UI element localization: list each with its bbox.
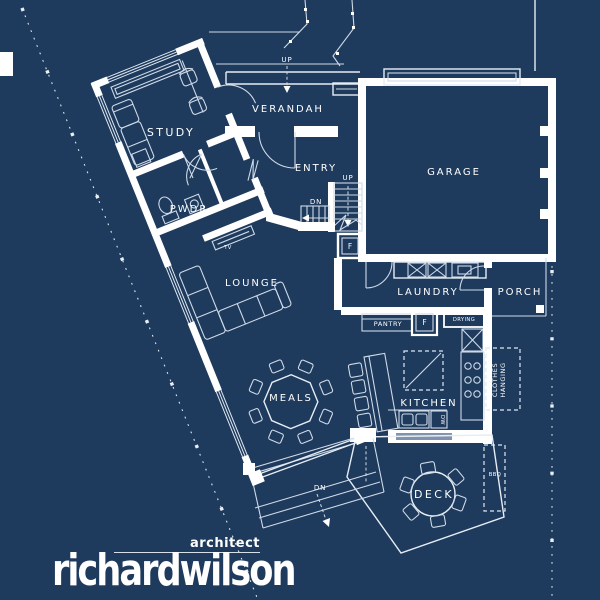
room-label-porch: PORCH bbox=[498, 287, 543, 298]
tv-wall bbox=[203, 211, 272, 239]
label-dishwasher: DW bbox=[439, 415, 445, 425]
label-fireplace-entry: F bbox=[348, 242, 352, 251]
entry-south-wall bbox=[298, 222, 335, 231]
room-label-laundry: LAUNDRY bbox=[397, 287, 459, 298]
breakfast-bench bbox=[347, 353, 398, 434]
study-door-arc bbox=[218, 76, 256, 114]
label-clothes-line2: HANGING bbox=[499, 362, 507, 397]
laundry-door-arc bbox=[366, 262, 392, 288]
label-tv: TV bbox=[223, 245, 232, 251]
porch-marker bbox=[536, 305, 544, 313]
label-clothes-line1: CLOTHES bbox=[491, 363, 499, 397]
wall-break-symbol bbox=[241, 158, 264, 182]
label-up-stairs: UP bbox=[343, 174, 354, 182]
room-label-meals: MEALS bbox=[269, 393, 313, 404]
laundry-room bbox=[366, 262, 486, 288]
neighbour-wall-stub bbox=[0, 52, 13, 76]
hall-west-wall bbox=[334, 258, 342, 310]
room-label-entry: ENTRY bbox=[295, 163, 337, 174]
pantry-row bbox=[341, 307, 484, 351]
label-up-verandah: UP bbox=[282, 56, 293, 64]
dn-arrowhead-entry bbox=[302, 215, 309, 222]
garage-room bbox=[362, 0, 552, 258]
room-label-lounge: LOUNGE bbox=[225, 278, 279, 289]
label-drying: DRYING bbox=[453, 317, 475, 323]
floor-plan-page: STUDY PWDR VERANDAH ENTRY GARAGE LOUNGE … bbox=[0, 0, 600, 600]
room-label-deck: DECK bbox=[414, 488, 454, 501]
label-fridge-kitchen: F bbox=[422, 318, 426, 327]
study-east-wall bbox=[200, 43, 236, 133]
porch-area bbox=[460, 255, 546, 316]
dn-arrowhead-steps bbox=[323, 518, 331, 527]
front-door-arc bbox=[259, 132, 295, 168]
cooktop-bench bbox=[461, 352, 484, 420]
up-arrowhead-verandah bbox=[284, 86, 291, 93]
pwdr-partition bbox=[200, 149, 223, 206]
label-pantry: PANTRY bbox=[374, 320, 402, 328]
label-dn-entry: DN bbox=[310, 198, 322, 206]
room-label-pwdr: PWDR bbox=[170, 204, 209, 215]
logo-name: richardwilson bbox=[52, 551, 295, 591]
room-label-study: STUDY bbox=[147, 126, 195, 139]
floor-plan-canvas: STUDY PWDR VERANDAH ENTRY GARAGE LOUNGE … bbox=[0, 0, 600, 600]
logo: architect richardwilson bbox=[52, 536, 355, 591]
property-boundary-left bbox=[22, 8, 258, 600]
room-label-kitchen: KITCHEN bbox=[400, 398, 457, 409]
room-label-verandah: VERANDAH bbox=[252, 104, 324, 115]
label-dn-steps: DN bbox=[314, 484, 326, 492]
room-label-garage: GARAGE bbox=[427, 167, 481, 178]
label-bbq: BBQ bbox=[489, 472, 501, 478]
study-chairs bbox=[176, 66, 209, 115]
cooktop-burners bbox=[465, 363, 480, 397]
